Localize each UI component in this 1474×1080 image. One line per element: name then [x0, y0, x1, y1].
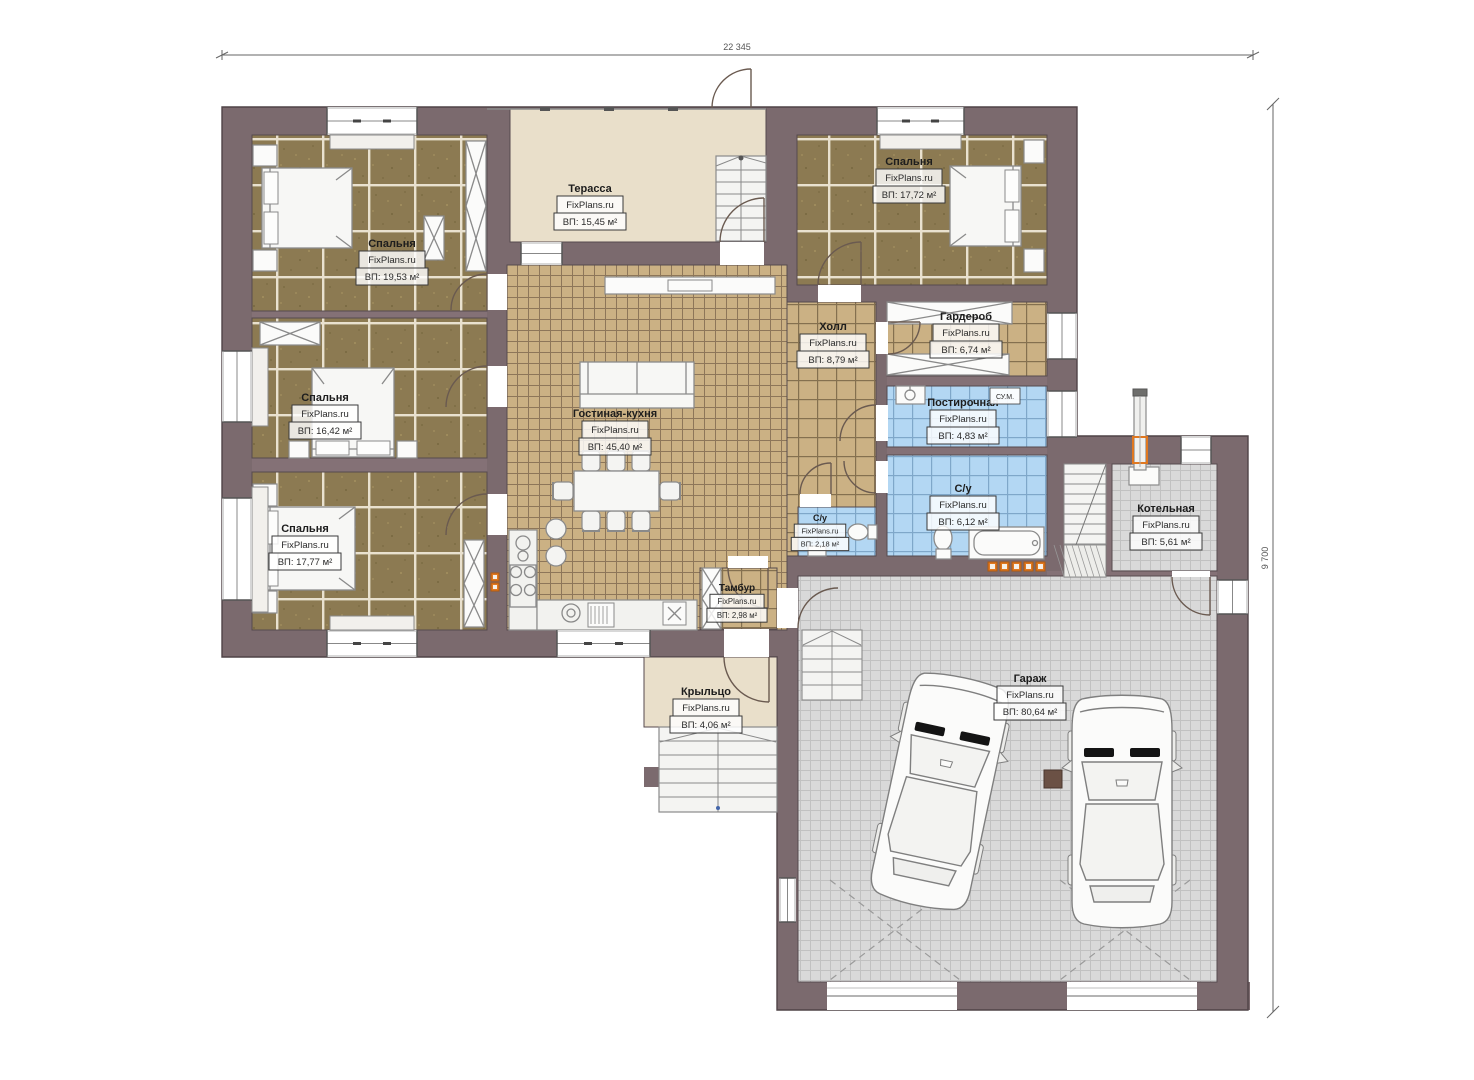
svg-text:Спальня: Спальня: [301, 392, 349, 404]
svg-text:FixPlans.ru: FixPlans.ru: [301, 409, 349, 420]
svg-text:Холл: Холл: [819, 321, 847, 333]
svg-text:Гараж: Гараж: [1014, 673, 1047, 685]
svg-text:С/у: С/у: [813, 513, 827, 523]
svg-text:ВП: 15,45 м²: ВП: 15,45 м²: [563, 217, 618, 228]
svg-text:Крыльцо: Крыльцо: [681, 686, 731, 698]
svg-text:ВП: 6,74 м²: ВП: 6,74 м²: [941, 345, 990, 356]
svg-text:Спальня: Спальня: [885, 156, 933, 168]
svg-text:9 700: 9 700: [1260, 547, 1270, 570]
svg-text:Котельная: Котельная: [1137, 503, 1195, 515]
svg-text:FixPlans.ru: FixPlans.ru: [682, 703, 730, 714]
svg-text:FixPlans.ru: FixPlans.ru: [939, 414, 987, 425]
svg-text:Терасса: Терасса: [568, 183, 612, 195]
svg-text:С/у: С/у: [954, 483, 972, 495]
svg-text:Тамбур: Тамбур: [719, 582, 755, 594]
svg-text:FixPlans.ru: FixPlans.ru: [1142, 520, 1190, 531]
svg-text:FixPlans.ru: FixPlans.ru: [591, 425, 639, 436]
svg-text:ВП: 6,12 м²: ВП: 6,12 м²: [938, 517, 987, 528]
svg-text:Спальня: Спальня: [281, 523, 329, 535]
svg-text:ВП: 5,61 м²: ВП: 5,61 м²: [1141, 537, 1190, 548]
svg-text:FixPlans.ru: FixPlans.ru: [939, 500, 987, 511]
svg-text:Постирочная: Постирочная: [927, 397, 998, 409]
svg-text:ВП: 19,53 м²: ВП: 19,53 м²: [365, 272, 420, 283]
svg-text:ВП: 2,18 м²: ВП: 2,18 м²: [801, 540, 840, 549]
svg-text:ВП: 8,79 м²: ВП: 8,79 м²: [808, 355, 857, 366]
svg-text:FixPlans.ru: FixPlans.ru: [281, 540, 329, 551]
svg-text:ВП: 16,42 м²: ВП: 16,42 м²: [298, 426, 353, 437]
svg-text:22 345: 22 345: [723, 42, 751, 52]
svg-text:ВП: 80,64 м²: ВП: 80,64 м²: [1003, 707, 1058, 718]
svg-text:FixPlans.ru: FixPlans.ru: [885, 173, 933, 184]
svg-text:FixPlans.ru: FixPlans.ru: [942, 328, 990, 339]
svg-text:ВП: 2,98 м²: ВП: 2,98 м²: [717, 611, 758, 620]
svg-text:СУ.М.: СУ.М.: [996, 394, 1014, 401]
svg-text:ВП: 4,06 м²: ВП: 4,06 м²: [681, 720, 730, 731]
svg-text:Гардероб: Гардероб: [940, 311, 992, 323]
svg-text:ВП: 45,40 м²: ВП: 45,40 м²: [588, 442, 643, 453]
svg-text:Спальня: Спальня: [368, 238, 416, 250]
svg-text:ВП: 17,77 м²: ВП: 17,77 м²: [278, 557, 333, 568]
svg-text:FixPlans.ru: FixPlans.ru: [566, 200, 614, 211]
svg-text:FixPlans.ru: FixPlans.ru: [718, 597, 757, 606]
svg-text:ВП: 4,83 м²: ВП: 4,83 м²: [938, 431, 987, 442]
svg-text:FixPlans.ru: FixPlans.ru: [368, 255, 416, 266]
svg-text:ВП: 17,72 м²: ВП: 17,72 м²: [882, 190, 937, 201]
svg-text:FixPlans.ru: FixPlans.ru: [1006, 690, 1054, 701]
svg-text:FixPlans.ru: FixPlans.ru: [801, 526, 838, 535]
svg-text:FixPlans.ru: FixPlans.ru: [809, 338, 857, 349]
svg-text:Гостиная-кухня: Гостиная-кухня: [573, 408, 657, 420]
